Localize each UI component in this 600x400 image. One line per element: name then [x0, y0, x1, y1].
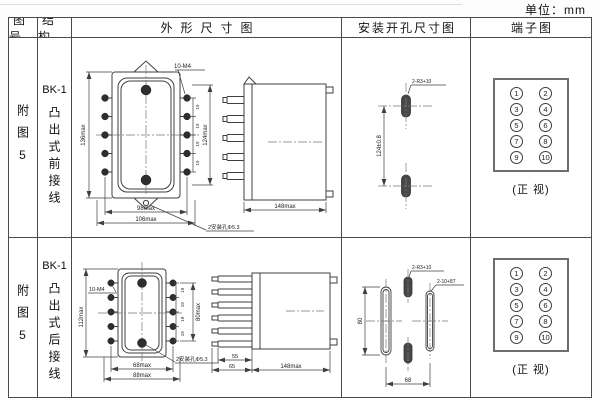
dim-height-screws: 80max: [196, 302, 202, 320]
header-outline-dims: 外形尺寸图: [72, 18, 342, 38]
mounting-hole-note: 2安装孔Φ5.3: [208, 223, 240, 231]
row2-mounting-cell: 80 68 2-R3+10 2-10+87: [342, 238, 471, 397]
terminal-6: 6: [539, 299, 552, 312]
dim-depth: 148max: [274, 204, 295, 210]
row1-mounting-drawing: 124±0.8 2-R3+10: [342, 38, 470, 237]
terminal-2: 2: [539, 267, 552, 280]
dim-height-outer: 136max: [81, 124, 87, 145]
terminal-1: 1: [510, 267, 523, 280]
structure-description: 凸出式前接线: [46, 106, 63, 208]
terminal-box: 1 2 3 4 5 6 7 8 9 10: [493, 258, 569, 352]
screw-spec-note: 10-M4: [89, 287, 105, 293]
relay-side-view: [223, 77, 333, 200]
row1-figure-no: 附图5: [9, 38, 38, 238]
dim-pitch-2: 19: [195, 123, 200, 129]
dim-pitch-3: 19: [180, 316, 185, 322]
mounting-dimension-lines: [384, 85, 446, 186]
dim-depth: 148max: [280, 364, 301, 370]
dim-height-outer: 112max: [79, 306, 85, 327]
row2-mounting-drawing: 80 68 2-R3+10 2-10+87: [342, 239, 470, 397]
terminal-2: 2: [539, 87, 552, 100]
row2-outline-cell: 112max 10-M4 19 19 19 19 80max 68max 88m…: [72, 238, 342, 397]
terminal-8: 8: [539, 135, 552, 148]
terminal-3: 3: [510, 283, 523, 296]
figure-number: 附图5: [15, 284, 32, 352]
row2-structure: BK-1 凸出式后接线: [38, 238, 72, 397]
terminal-1: 1: [510, 87, 523, 100]
terminal-7: 7: [510, 135, 523, 148]
row1-terminal-cell: 1 2 3 4 5 6 7 8 9 10 (正 视): [471, 38, 591, 238]
relay-model: BK-1: [42, 84, 66, 96]
dim-slot-spacing: 68: [405, 378, 412, 384]
terminal-4: 4: [539, 283, 552, 296]
dim-height-screws: 124max: [203, 124, 209, 145]
header-mounting-holes: 安装开孔尺寸图: [342, 18, 471, 38]
dim-pitch-4: 19: [195, 160, 200, 166]
slot-note-small: 2-R3+10: [412, 265, 432, 271]
unit-label: 单位：mm: [525, 1, 586, 18]
dim-pin-outer: 65: [229, 364, 235, 370]
screw-spec-note: 10-M4: [174, 64, 192, 70]
row2-figure-no: 附图5: [9, 238, 38, 397]
dim-pitch-1: 19: [180, 287, 185, 293]
header-figure-no: 图号: [9, 18, 38, 38]
terminal-5: 5: [510, 119, 523, 132]
slot-note-long: 2-10+87: [437, 279, 456, 285]
dim-width-inner: 98max: [137, 206, 155, 212]
dim-pitch-4: 19: [180, 330, 185, 336]
row1-mounting-cell: 124±0.8 2-R3+10: [342, 38, 471, 238]
relay-model: BK-1: [42, 260, 66, 272]
terminal-5: 5: [510, 299, 523, 312]
row2-outline-drawing: 112max 10-M4 19 19 19 19 80max 68max 88m…: [72, 239, 341, 397]
header-structure: 结构: [38, 18, 72, 38]
dim-pitch-1: 19: [195, 104, 200, 110]
dim-width-inner: 68max: [133, 363, 151, 369]
dim-width-outer: 88max: [133, 373, 151, 379]
terminal-9: 9: [510, 151, 523, 164]
terminal-10: 10: [539, 331, 552, 344]
row1-outline-drawing: 136max 124max 19 19 19 19 10-M4 98max 10…: [72, 38, 341, 237]
terminal-4: 4: [539, 103, 552, 116]
structure-description: 凸出式后接线: [46, 282, 63, 384]
figure-number: 附图5: [15, 104, 32, 172]
row1-structure: BK-1 凸出式前接线: [38, 38, 72, 238]
dim-hole-spacing: 124±0.8: [377, 135, 383, 157]
terminal-view-label: (正 视): [512, 361, 549, 377]
page-top-rule: [0, 4, 462, 5]
dim-pin-inner: 55: [232, 354, 238, 360]
mounting-hole-note: 2安装孔Φ5.3: [176, 355, 208, 363]
dim-pitch-2: 19: [180, 301, 185, 307]
header-terminal-diagram: 端子图: [471, 18, 591, 38]
dim-width-outer: 106max: [135, 217, 156, 223]
terminal-9: 9: [510, 331, 523, 344]
terminal-view-label: (正 视): [512, 181, 549, 197]
spec-table: 图号 结构 外形尺寸图 安装开孔尺寸图 端子图 附图5 BK-1 凸出式前接线: [8, 17, 592, 398]
terminal-box: 1 2 3 4 5 6 7 8 9 10: [493, 78, 569, 172]
dimension-lines: [86, 70, 254, 231]
terminal-7: 7: [510, 315, 523, 328]
dim-slot-height: 80: [358, 317, 364, 324]
row1-outline-cell: 136max 124max 19 19 19 19 10-M4 98max 10…: [72, 38, 342, 238]
slot-centerlines: [378, 83, 434, 209]
terminal-6: 6: [539, 119, 552, 132]
terminal-8: 8: [539, 315, 552, 328]
terminal-3: 3: [510, 103, 523, 116]
mounting-dimension-lines: [362, 271, 464, 387]
terminal-10: 10: [539, 151, 552, 164]
dim-pitch-3: 19: [195, 141, 200, 147]
row2-terminal-cell: 1 2 3 4 5 6 7 8 9 10 (正 视): [471, 238, 591, 397]
slot-note: 2-R3+10: [412, 79, 432, 85]
